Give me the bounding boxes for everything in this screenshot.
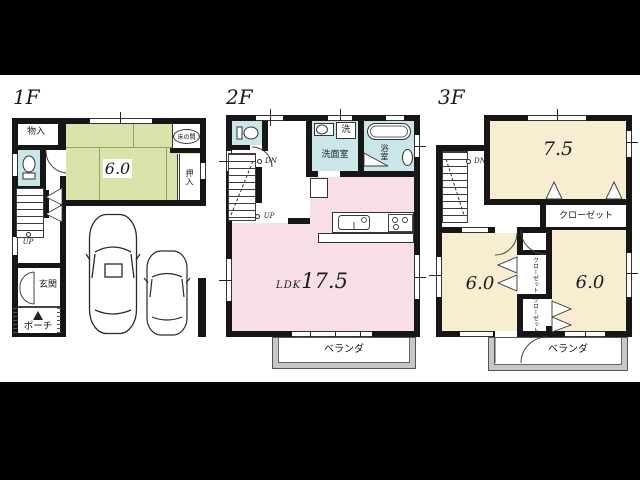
f2-dn-circle: [257, 159, 262, 164]
f2-ldk-area: 17.5: [301, 271, 348, 292]
f1-door-arc: [46, 151, 68, 173]
f3-window-right-2: [626, 253, 632, 297]
f3-stairs-down-label: DN: [472, 157, 488, 165]
f1-tatami-line: [133, 124, 134, 148]
f3-tick: [429, 275, 443, 276]
f3-closet-small-bottom-label: クローゼット: [523, 299, 546, 331]
f1-wall-genkan-top: [12, 263, 66, 268]
f1-porch-marker: [33, 311, 43, 320]
f1-tatami-line: [166, 148, 167, 200]
stove-icon: [388, 214, 413, 232]
f3-dn-circle: [466, 159, 471, 164]
floor-plan-image: 1F 物入 UP 6.0 床の間: [0, 0, 640, 480]
floor-2f-label: 2F: [226, 85, 253, 109]
f3-window-right-1: [626, 131, 632, 157]
f2-bath-oval: [402, 149, 413, 166]
f1-tokonoma-label: 床の間: [173, 129, 200, 144]
kitchen-sink-icon: [338, 215, 372, 230]
f2-counter-front: [318, 233, 414, 243]
f2-ldk-kitchen-area: [310, 177, 414, 331]
f2-stairs-direction: [228, 153, 256, 221]
f3-veranda-label: ベランダ: [520, 343, 616, 357]
f3-closet-door-left: [546, 182, 562, 199]
toilet-icon: [21, 155, 37, 181]
f1-stairs-start-circle: [26, 232, 31, 237]
f2-fridge-space: [310, 178, 328, 198]
f3-bedroom-a-area: 7.5: [520, 137, 596, 161]
f3-closet-door-right: [606, 182, 622, 199]
f2-tick: [412, 277, 426, 278]
f1-understair-doors: [46, 188, 62, 222]
washbasin-icon: [314, 123, 334, 136]
plan-paper: 1F 物入 UP 6.0 床の間: [0, 75, 640, 382]
f2-bath-door: [364, 151, 390, 168]
f1-window-left-2: [12, 237, 18, 255]
f3-tick: [624, 142, 638, 143]
f3-wall-bedroom-a-bottom: [484, 199, 632, 205]
f1-stairs-up-label: UP: [19, 238, 37, 246]
f1-wall-porch-bottom: [12, 333, 66, 337]
f2-wall-toilet-bottom: [232, 145, 250, 150]
f3-wall-center-c: [546, 230, 552, 298]
f3-veranda-door-arc: [495, 337, 521, 363]
f2-up-circle: [255, 214, 260, 219]
f2-stairs-up-label: UP: [261, 212, 277, 220]
f1-porch-label: ポーチ: [16, 321, 60, 333]
floor-1f-label: 1F: [13, 85, 40, 109]
floor-3f-label: 3F: [438, 85, 465, 109]
toilet-icon: [236, 125, 260, 141]
f2-tick: [412, 146, 426, 147]
f2-wall-stairs-right: [256, 167, 262, 203]
f1-stairs: [16, 188, 44, 238]
f3-closet-doors-left-pair: [498, 257, 517, 291]
f1-wall-tatami-bottom: [60, 200, 206, 206]
f1-window-right: [200, 163, 206, 179]
f1-oshiire-label: 押入: [182, 160, 196, 194]
f3-closet-doors-right-pair: [552, 301, 571, 333]
f1-entrance-label: 玄関: [34, 279, 62, 291]
f2-tick: [219, 280, 233, 281]
f3-door-arc-left-room: [495, 233, 517, 255]
f2-veranda-label: ベランダ: [292, 343, 396, 357]
f1-tatami-line: [99, 148, 100, 200]
f3-stairs-direction: [442, 151, 468, 223]
f3-door-arc-right-room: [521, 230, 545, 254]
f1-wall-right-upper: [200, 118, 206, 206]
f1-wall-right-lower: [198, 278, 206, 337]
f2-laundry-label: 洗: [336, 122, 356, 139]
f2-ldk-text: LDK: [276, 281, 301, 291]
f2-wall-hall-ldk: [288, 218, 310, 224]
f1-wall-tokonoma-bottom: [170, 148, 206, 153]
f1-storage-label: 物入: [14, 124, 58, 140]
f2-stairs-down-label: DN: [263, 157, 279, 165]
f3-closet-label: クローゼット: [546, 206, 626, 227]
f2-ldk-label: LDK17.5: [252, 271, 372, 297]
f3-tick: [624, 273, 638, 274]
f1-tatami-area-label: 6.0: [103, 159, 132, 178]
f2-tick: [270, 109, 271, 126]
car-icon: [86, 212, 140, 336]
f3-closet-small-top-label: クローゼット: [523, 256, 546, 294]
f1-porch-step: [18, 306, 60, 308]
f1-genkan-double-door: [19, 271, 35, 305]
car-icon: [144, 249, 190, 337]
f3-bedroom-c-area: 6.0: [565, 272, 615, 294]
f2-washroom-label: 洗面室: [312, 149, 358, 161]
